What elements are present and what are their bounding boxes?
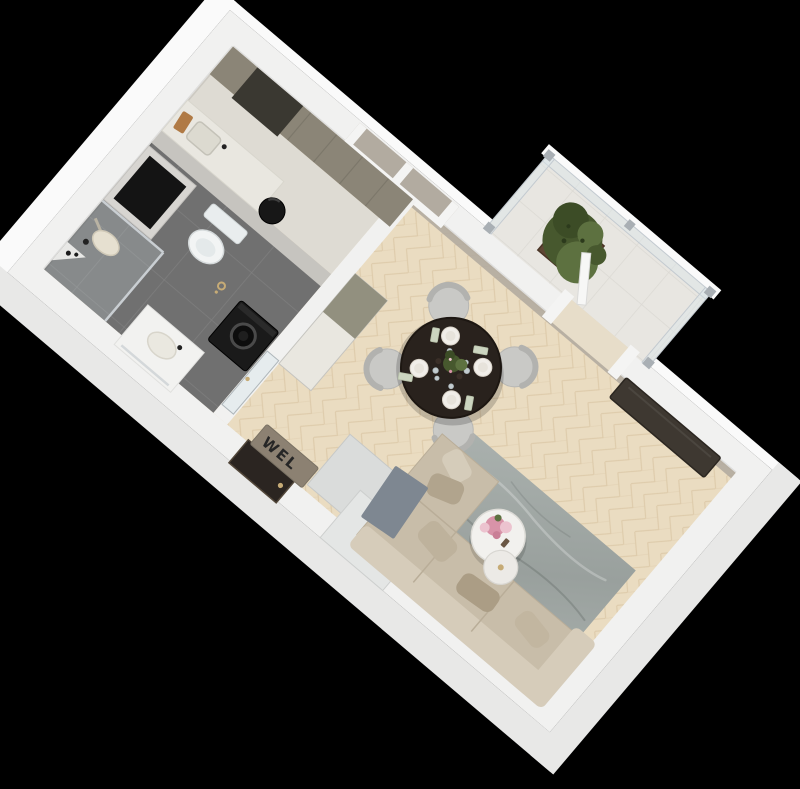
- floorplan-svg: WEL: [0, 0, 800, 789]
- apartment-render: WEL: [0, 0, 800, 789]
